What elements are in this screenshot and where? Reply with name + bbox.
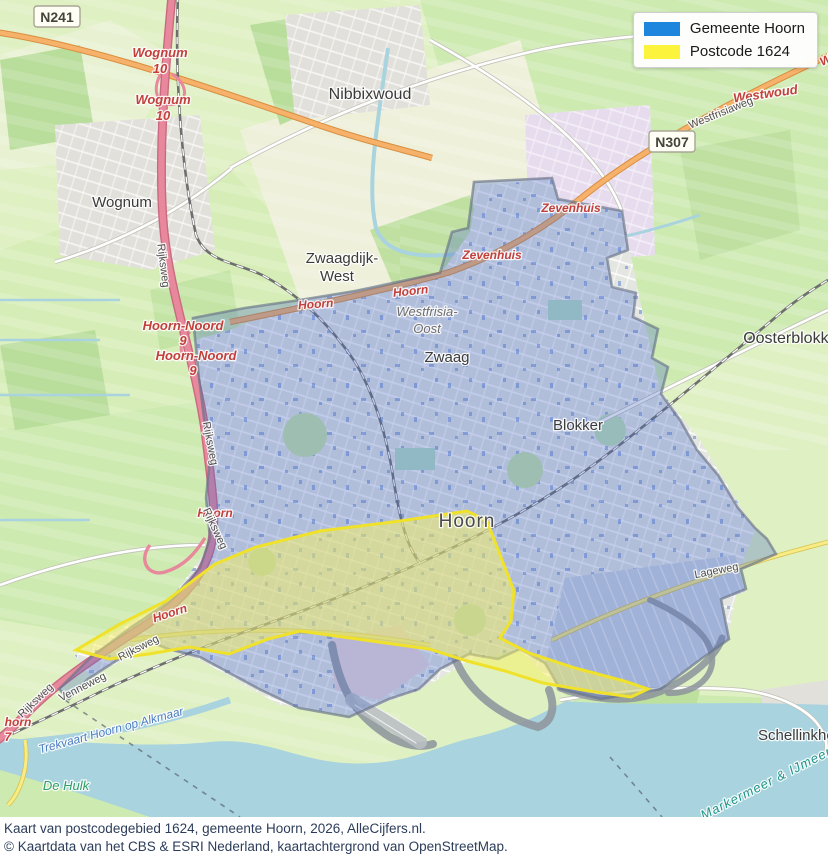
map-label-exit-wognum-2b: 10 xyxy=(156,108,171,123)
caption-line-1: Kaart van postcodegebied 1624, gemeente … xyxy=(4,820,824,838)
map-label-exit-wognum-1a: Wognum xyxy=(132,45,188,60)
legend-row-gemeente: Gemeente Hoorn xyxy=(644,20,805,37)
map-label-wognum-town: Wognum xyxy=(92,194,152,211)
map-label-schellinkhout: Schellinkhout xyxy=(758,727,828,744)
map-caption: Kaart van postcodegebied 1624, gemeente … xyxy=(0,817,828,855)
map-label-blokker: Blokker xyxy=(553,417,603,434)
map-label-zevenhuis-1: Zevenhuis xyxy=(540,201,601,215)
map-label-hoorn-road-2: Hoorn xyxy=(298,296,334,312)
map-label-exit-hoorn-noord-2b: 9 xyxy=(189,363,197,378)
map-label-westfrisia-2: Oost xyxy=(413,321,442,336)
road-shield-n307: N307 xyxy=(649,131,695,152)
map-label-nibbixwoud: Nibbixwoud xyxy=(329,86,412,103)
legend-row-postcode: Postcode 1624 xyxy=(644,43,805,60)
map-label-westfrisia-1: Westfrisia- xyxy=(396,304,458,319)
svg-text:N307: N307 xyxy=(655,134,689,150)
map-label-exit-hoorn-noord-1a: Hoorn-Noord xyxy=(143,318,225,333)
map-label-exit-hoorn-noord-1b: 9 xyxy=(179,333,187,348)
map-legend: Gemeente Hoorn Postcode 1624 xyxy=(633,12,818,68)
caption-line-2: © Kaartdata van het CBS & ESRI Nederland… xyxy=(4,838,824,856)
map-label-exit-hoorn-noord-2a: Hoorn-Noord xyxy=(156,348,238,363)
map-label-zwaagdijk-west-1: Zwaagdijk- xyxy=(306,250,379,267)
road-shield-n241: N241 xyxy=(34,6,80,27)
map-label-oosterblokker: Oosterblokker xyxy=(743,330,828,347)
map-label-zwaag: Zwaag xyxy=(424,349,469,366)
map-label-hoorn-city: Hoorn xyxy=(439,511,496,532)
map-label-de-hulk: De Hulk xyxy=(43,778,91,793)
map-label-exit-wognum-1b: 10 xyxy=(153,61,168,76)
svg-text:N241: N241 xyxy=(40,9,74,25)
legend-label-postcode: Postcode 1624 xyxy=(690,43,790,60)
map-viewport: N241N307 WognumNibbixwoudZwaagdijk-WestZ… xyxy=(0,0,828,817)
map-label-zevenhuis-2: Zevenhuis xyxy=(461,248,522,262)
map-canvas: N241N307 WognumNibbixwoudZwaagdijk-WestZ… xyxy=(0,0,828,817)
gemeente-color-swatch xyxy=(644,22,680,36)
map-label-zwaagdijk-west-2: West xyxy=(320,268,355,285)
legend-label-gemeente: Gemeente Hoorn xyxy=(690,20,805,37)
map-label-exit-wognum-2a: Wognum xyxy=(135,92,191,107)
postcode-color-swatch xyxy=(644,45,680,59)
